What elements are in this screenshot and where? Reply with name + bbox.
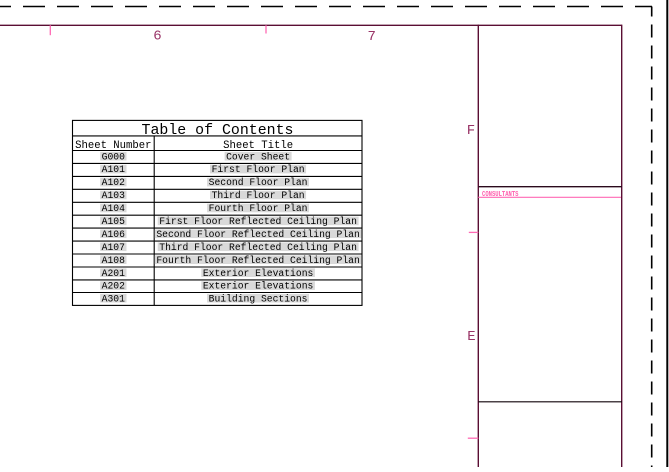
svg-text:A108: A108 [102,255,125,266]
svg-text:Table of Contents: Table of Contents [142,123,294,139]
svg-text:Building Sections: Building Sections [209,293,308,304]
svg-text:A104: A104 [102,203,125,214]
svg-text:Second Floor Plan: Second Floor Plan [209,177,308,188]
svg-text:A107: A107 [102,242,125,253]
svg-text:Third Floor Reflected Ceiling: Third Floor Reflected Ceiling Plan [159,242,357,253]
svg-text:E: E [467,329,475,345]
svg-text:Fourth Floor Plan: Fourth Floor Plan [209,203,308,214]
svg-text:Cover Sheet: Cover Sheet [226,151,290,162]
svg-text:Second Floor Reflected Ceiling: Second Floor Reflected Ceiling Plan [156,229,359,240]
svg-text:First Floor Reflected Ceiling: First Floor Reflected Ceiling Plan [159,216,357,227]
svg-text:7: 7 [367,29,375,45]
svg-text:CONSULTANTS: CONSULTANTS [482,191,519,199]
svg-text:Fourth Floor Reflected Ceiling: Fourth Floor Reflected Ceiling Plan [156,255,359,266]
svg-text:A301: A301 [102,293,125,304]
svg-text:A101: A101 [102,164,125,175]
svg-text:A105: A105 [102,216,125,227]
svg-text:Sheet Title: Sheet Title [223,140,293,152]
svg-text:A103: A103 [102,190,125,201]
svg-text:A106: A106 [102,229,125,240]
svg-text:A201: A201 [102,268,125,279]
svg-text:F: F [467,123,475,139]
svg-text:G000: G000 [102,151,125,162]
svg-text:Sheet Number: Sheet Number [75,140,151,152]
svg-text:6: 6 [153,29,161,45]
svg-text:A202: A202 [102,281,125,292]
svg-text:Third Floor Plan: Third Floor Plan [212,190,305,201]
svg-text:Exterior Elevations: Exterior Elevations [203,268,314,279]
svg-text:A102: A102 [102,177,125,188]
svg-text:First Floor Plan: First Floor Plan [212,164,305,175]
svg-text:Exterior Elevations: Exterior Elevations [203,281,314,292]
